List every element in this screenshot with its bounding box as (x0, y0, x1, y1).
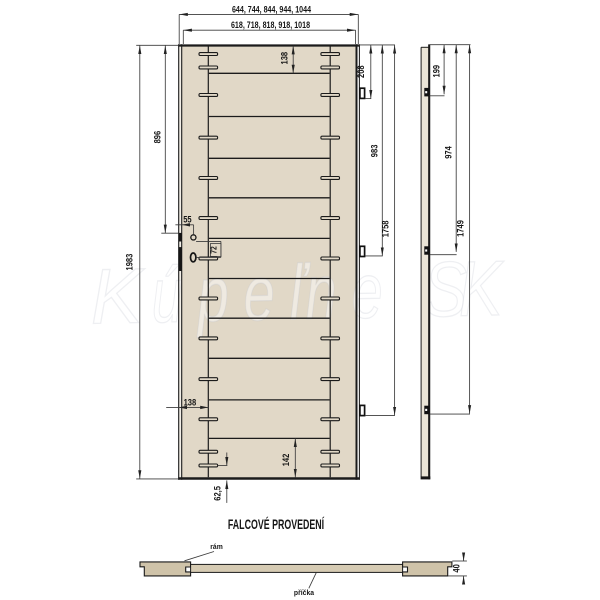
svg-text:138: 138 (279, 52, 290, 65)
svg-text:983: 983 (369, 144, 380, 157)
svg-text:1983: 1983 (124, 253, 135, 270)
svg-text:rám: rám (210, 542, 223, 551)
svg-text:208: 208 (355, 65, 366, 78)
svg-text:příčka: příčka (294, 588, 315, 597)
svg-text:1758: 1758 (380, 220, 391, 237)
svg-text:1749: 1749 (455, 220, 466, 237)
svg-text:72: 72 (209, 246, 219, 253)
svg-text:138: 138 (184, 397, 197, 408)
svg-text:199: 199 (431, 65, 442, 78)
svg-text:62,5: 62,5 (212, 486, 223, 501)
svg-text:644, 744, 844, 944, 1044: 644, 744, 844, 944, 1044 (232, 5, 311, 15)
svg-text:K: K (90, 251, 147, 340)
svg-text:896: 896 (152, 130, 163, 143)
svg-text:FALCOVÉ PROVEDENÍ: FALCOVÉ PROVEDENÍ (228, 517, 325, 532)
svg-text:40: 40 (451, 564, 462, 573)
svg-text:618, 718, 818, 918, 1018: 618, 718, 818, 918, 1018 (231, 20, 310, 30)
svg-text:142: 142 (280, 453, 291, 466)
svg-text:974: 974 (443, 146, 454, 159)
svg-text:55: 55 (183, 214, 192, 225)
svg-text:SK: SK (423, 246, 506, 334)
